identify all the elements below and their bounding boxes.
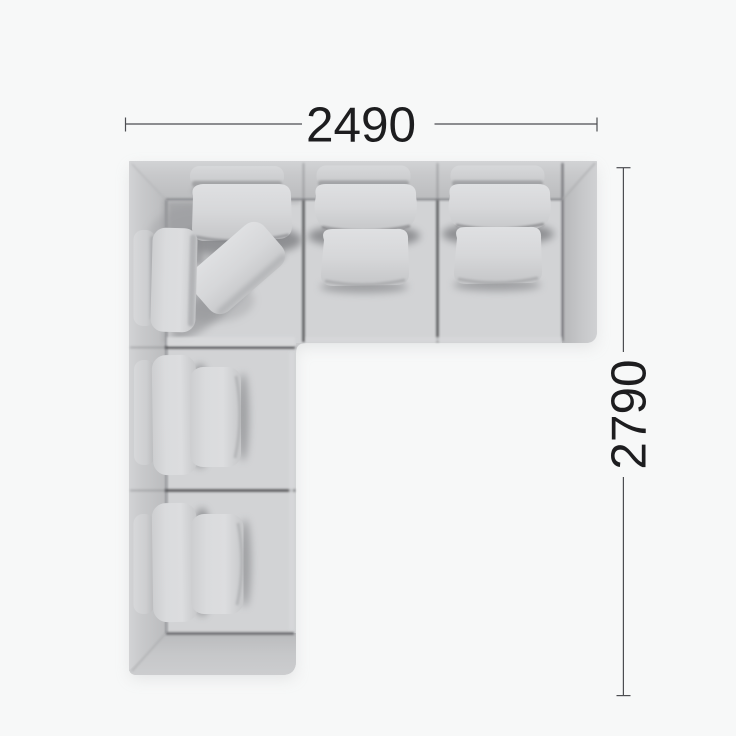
svg-text:2490: 2490 bbox=[306, 98, 416, 153]
svg-text:2790: 2790 bbox=[602, 359, 657, 469]
